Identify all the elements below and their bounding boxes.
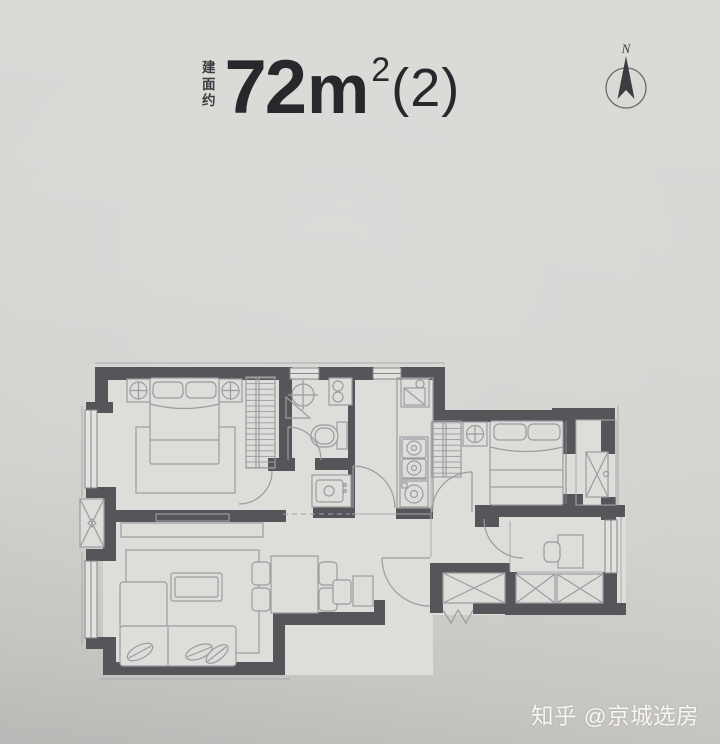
toilet-icon — [311, 422, 347, 449]
dining-table-icon — [271, 556, 318, 613]
page-title: 72m2(2) — [225, 50, 461, 126]
title-prefix-char: 面 — [202, 77, 216, 94]
kitchen-window — [373, 368, 401, 379]
north-compass-icon: N — [606, 41, 646, 108]
compass-label: N — [621, 41, 632, 56]
desk-icon — [558, 535, 583, 568]
stove-icon — [400, 437, 428, 479]
plan-variant: (2) — [391, 58, 460, 118]
floorplan-photo: N 建 面 约 72m2(2) 知乎 @京城选房 — [0, 0, 720, 744]
kitchen-sink-icon — [401, 379, 429, 407]
title-prefix-char: 建 — [202, 60, 216, 77]
tv-console-icon — [121, 523, 263, 537]
storage-shaft-icon — [557, 574, 603, 603]
bath-window — [290, 368, 319, 379]
watermark: 知乎 @京城选房 — [531, 699, 699, 731]
study-window — [605, 520, 617, 573]
title-block: 建 面 约 72m2(2) — [202, 50, 460, 126]
elevator-shaft-icon — [443, 573, 505, 623]
area-value: 72 — [225, 45, 306, 130]
double-bed-icon — [150, 378, 219, 464]
nightstand-lamp-icon — [219, 379, 242, 402]
double-bed-icon — [490, 421, 563, 505]
nightstand-lamp-icon — [127, 379, 150, 402]
kitchen-fixtures — [397, 378, 433, 508]
nightstand-lamp-icon — [463, 422, 487, 446]
ac-unit-icon — [80, 499, 104, 547]
washing-machine-icon — [400, 481, 428, 507]
title-prefix-char: 约 — [202, 93, 216, 110]
chair-icon — [252, 588, 270, 611]
shafts-storage — [443, 573, 603, 623]
coffee-table-icon — [171, 573, 222, 601]
vanity-sink-icon — [312, 475, 351, 507]
chair-icon — [333, 580, 351, 604]
area-exponent: 2 — [371, 51, 390, 89]
title-prefix: 建 面 约 — [202, 60, 216, 110]
storage-shaft-icon — [516, 574, 555, 603]
wardrobe-icon — [432, 421, 461, 477]
area-unit: m — [307, 50, 369, 128]
master-window — [85, 410, 97, 488]
side-table-icon — [353, 576, 373, 606]
corner-cabinet-icon — [329, 378, 352, 405]
ac-unit-icon — [586, 452, 609, 497]
wardrobe-icon — [246, 377, 275, 468]
chair-icon — [252, 562, 270, 585]
chair-icon — [544, 542, 560, 562]
living-window — [85, 561, 97, 638]
